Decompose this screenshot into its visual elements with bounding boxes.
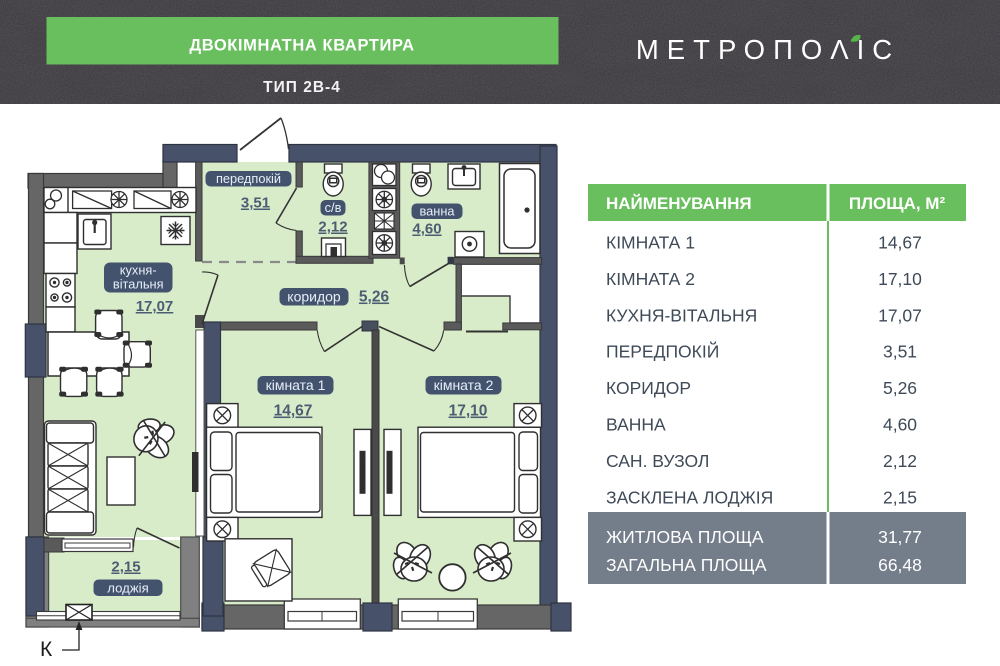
svg-text:ПЕРЕДПОКІЙ: ПЕРЕДПОКІЙ [606,341,719,362]
svg-text:кімната 1: кімната 1 [266,377,326,393]
svg-text:17,10: 17,10 [878,269,922,289]
svg-text:2,15: 2,15 [111,559,140,576]
svg-text:3,51: 3,51 [883,342,917,362]
svg-text:66,48: 66,48 [878,555,922,575]
svg-text:3,51: 3,51 [241,195,270,212]
svg-text:КІМНАТА 2: КІМНАТА 2 [606,269,695,289]
svg-text:коридор: коридор [287,289,341,305]
svg-text:ЗАСКЛЕНА ЛОДЖІЯ: ЗАСКЛЕНА ЛОДЖІЯ [606,487,773,507]
svg-text:КУХНЯ-ВІТАЛЬНЯ: КУХНЯ-ВІТАЛЬНЯ [606,305,757,325]
svg-text:МЕТРОПОΛІС: МЕТРОПОΛІС [636,34,900,65]
svg-text:2,12: 2,12 [883,451,917,471]
svg-text:ЗАГАЛЬНА ПЛОЩА: ЗАГАЛЬНА ПЛОЩА [606,555,767,575]
svg-text:передпокій: передпокій [216,171,281,186]
svg-text:4,60: 4,60 [412,221,441,238]
svg-text:5,26: 5,26 [359,289,390,306]
svg-text:кухня-: кухня- [120,263,157,278]
svg-text:17,07: 17,07 [878,305,922,325]
svg-text:2,15: 2,15 [883,487,917,507]
svg-text:ЖИТЛОВА ПЛОЩА: ЖИТЛОВА ПЛОЩА [606,527,764,547]
svg-text:вітальня: вітальня [113,277,164,292]
svg-text:кімната 2: кімната 2 [434,377,494,393]
svg-text:ТИП 2В-4: ТИП 2В-4 [263,79,341,96]
svg-text:САН. ВУЗОЛ: САН. ВУЗОЛ [606,451,709,471]
svg-text:с/в: с/в [325,200,342,215]
svg-text:лоджія: лоджія [107,580,148,595]
svg-text:ванна: ванна [419,204,455,219]
svg-text:К: К [40,638,53,661]
svg-text:14,67: 14,67 [878,233,922,253]
svg-text:5,26: 5,26 [883,378,917,398]
svg-text:ПЛОЩА, М²: ПЛОЩА, М² [849,194,946,213]
svg-text:КІМНАТА 1: КІМНАТА 1 [606,233,695,253]
svg-text:ВАННА: ВАННА [606,415,666,435]
svg-text:4,60: 4,60 [883,415,917,435]
svg-text:ДВОКІМНАТНА КВАРТИРА: ДВОКІМНАТНА КВАРТИРА [189,37,414,55]
svg-text:17,10: 17,10 [449,403,488,420]
svg-text:31,77: 31,77 [878,527,922,547]
svg-text:2,12: 2,12 [318,219,347,236]
svg-text:НАЙМЕНУВАННЯ: НАЙМЕНУВАННЯ [606,194,752,213]
svg-text:17,07: 17,07 [136,298,174,315]
svg-text:14,67: 14,67 [274,403,313,420]
svg-text:КОРИДОР: КОРИДОР [606,378,691,398]
